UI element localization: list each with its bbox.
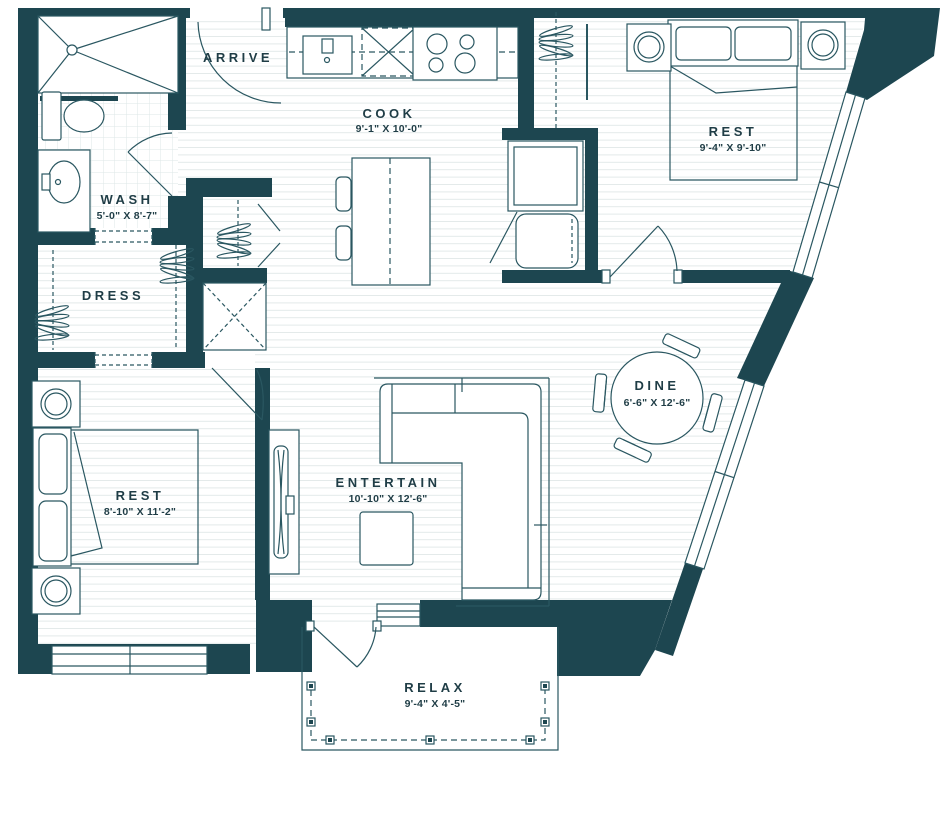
nightstand [32,568,80,614]
dine-label: DINE [634,378,679,393]
kitchen-sink [303,36,352,74]
rest-upper-dims: 9'-4" X 9'-10" [700,142,767,154]
nightstand [32,381,80,427]
wash-dims: 5'-0" X 8'-7" [97,210,158,222]
ottoman [360,512,413,565]
vanity-sink [38,150,90,232]
relax-label: RELAX [404,680,466,695]
floor-plan: ARRIVE COOK 9'-1" X 10'-0" WASH 5'-0" X … [0,0,943,832]
wash-label: WASH [101,192,154,207]
refrigerator [508,141,583,211]
tv-console [269,430,299,574]
arrive-label: ARRIVE [203,50,273,65]
bar-stool [336,226,351,260]
cook-label: COOK [363,106,416,121]
dine-dims: 6'-6" X 12'-6" [624,397,691,409]
rest-lower-label: REST [116,488,165,503]
rest-lower-dims: 8'-10" X 11'-2" [104,506,176,518]
floor-plan-drawing: ARRIVE COOK 9'-1" X 10'-0" WASH 5'-0" X … [0,0,943,832]
dress-label: DRESS [82,288,144,303]
shower [38,16,178,93]
bar-stool [336,177,351,211]
utility-closet [203,283,266,350]
window-bedroom-lower [52,646,207,674]
nightstand [801,22,845,69]
cook-dims: 9'-1" X 10'-0" [356,123,423,135]
window-balcony-sidelight [377,604,420,626]
stove [413,27,497,80]
entertain-dims: 10'-10" X 12'-6" [349,493,428,505]
rest-upper-label: REST [709,124,758,139]
entertain-label: ENTERTAIN [336,475,441,490]
nightstand [627,24,671,71]
relax-dims: 9'-4" X 4'-5" [405,698,466,710]
